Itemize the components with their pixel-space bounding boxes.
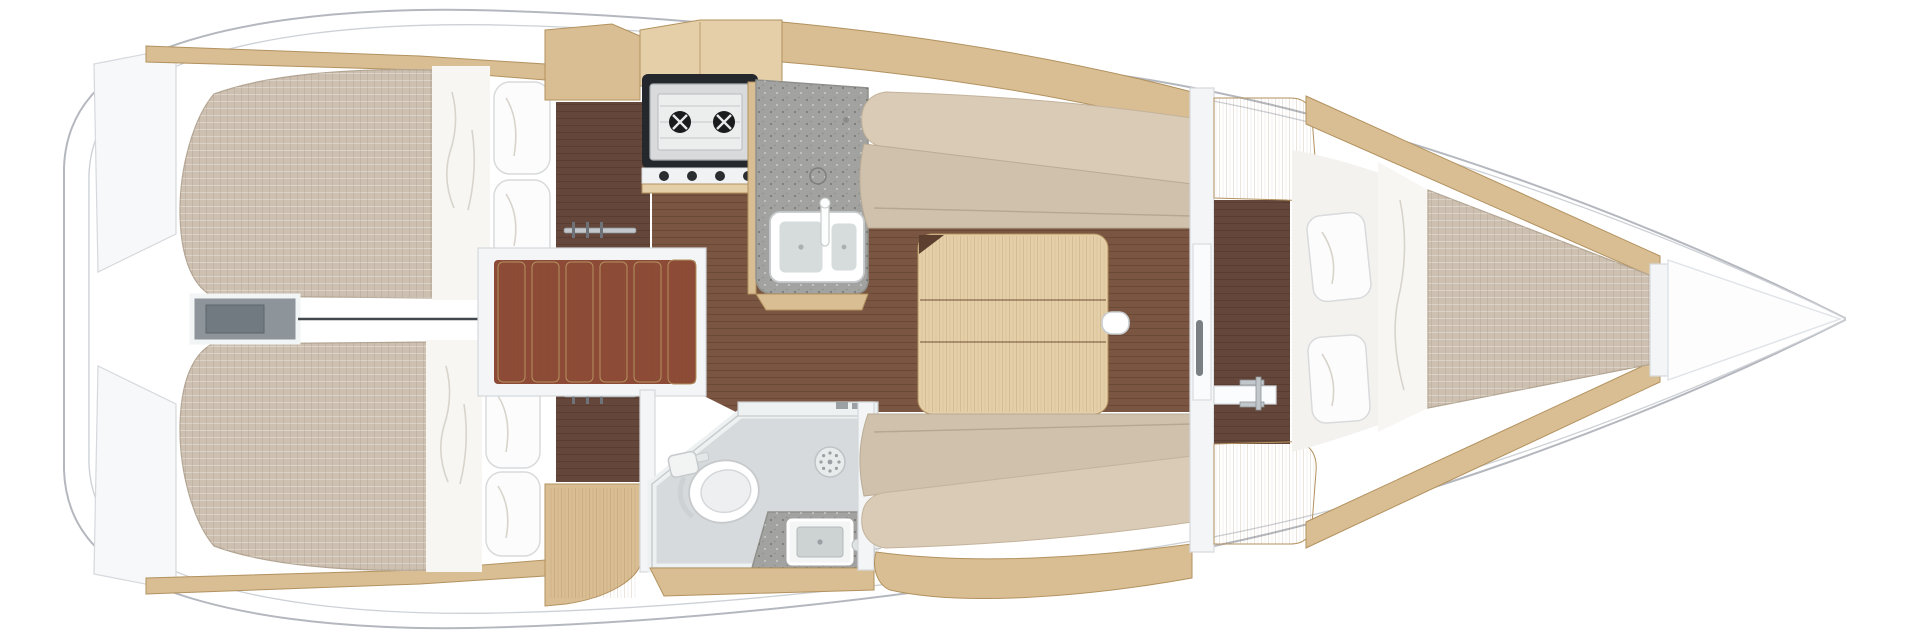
sink-drain xyxy=(842,245,847,250)
stern-locker-port xyxy=(94,48,176,272)
stair-tread xyxy=(566,262,593,382)
stove-knob xyxy=(715,171,725,181)
cabinet-grain xyxy=(548,488,638,598)
sink-drain xyxy=(798,244,803,249)
companionway xyxy=(478,248,706,396)
counter-dot-detail xyxy=(843,117,849,123)
stair-tread xyxy=(532,262,559,382)
wardrobe-starboard xyxy=(556,384,650,482)
entry-shelf xyxy=(1214,386,1276,404)
vanity-drain xyxy=(817,539,822,544)
galley-counter xyxy=(748,80,868,310)
toilet-tank xyxy=(667,451,699,478)
stove-burner xyxy=(713,111,735,133)
mattress-texture xyxy=(180,342,432,570)
hanger-icon xyxy=(586,222,589,238)
engine-box-inner xyxy=(206,305,264,333)
settee-starboard xyxy=(858,402,1192,599)
pillow xyxy=(494,82,550,174)
bed-blanket xyxy=(426,340,482,572)
stove-knob xyxy=(687,171,697,181)
forward-cabin xyxy=(1190,88,1840,552)
pillow xyxy=(1307,334,1371,424)
stove-burner xyxy=(669,111,691,133)
bow-bulkhead xyxy=(1650,264,1668,376)
table-leg-knob xyxy=(1102,312,1129,334)
pillow xyxy=(486,472,540,556)
stern-locker-starboard xyxy=(94,366,176,590)
stair-tread xyxy=(600,262,627,382)
yacht-floorplan xyxy=(0,0,1920,640)
floorplan-canvas xyxy=(0,0,1920,640)
stair-tread xyxy=(634,262,661,382)
wardrobe-port xyxy=(556,102,650,250)
stove-sill-trim xyxy=(642,184,758,193)
counter-side-trim xyxy=(748,82,756,294)
stair-tread xyxy=(668,260,696,384)
mattress-texture xyxy=(180,70,432,298)
shower-drain xyxy=(815,447,845,477)
stove xyxy=(642,74,758,193)
hanger-icon xyxy=(600,222,603,238)
salon-table xyxy=(918,234,1129,414)
cabinet-port-aft xyxy=(545,24,640,100)
table-grain xyxy=(920,236,1106,412)
door-handle-slot xyxy=(1196,320,1203,376)
forward-locker-starboard xyxy=(1214,442,1316,544)
pillow xyxy=(1306,211,1373,303)
door-latch xyxy=(836,402,848,409)
sink-faucet-head xyxy=(820,198,830,208)
hanger-icon xyxy=(572,222,575,238)
counter-base-trim xyxy=(756,294,868,310)
stove-knob xyxy=(659,171,669,181)
stair-tread xyxy=(498,262,525,382)
vberth-blanket-band xyxy=(1378,162,1428,432)
